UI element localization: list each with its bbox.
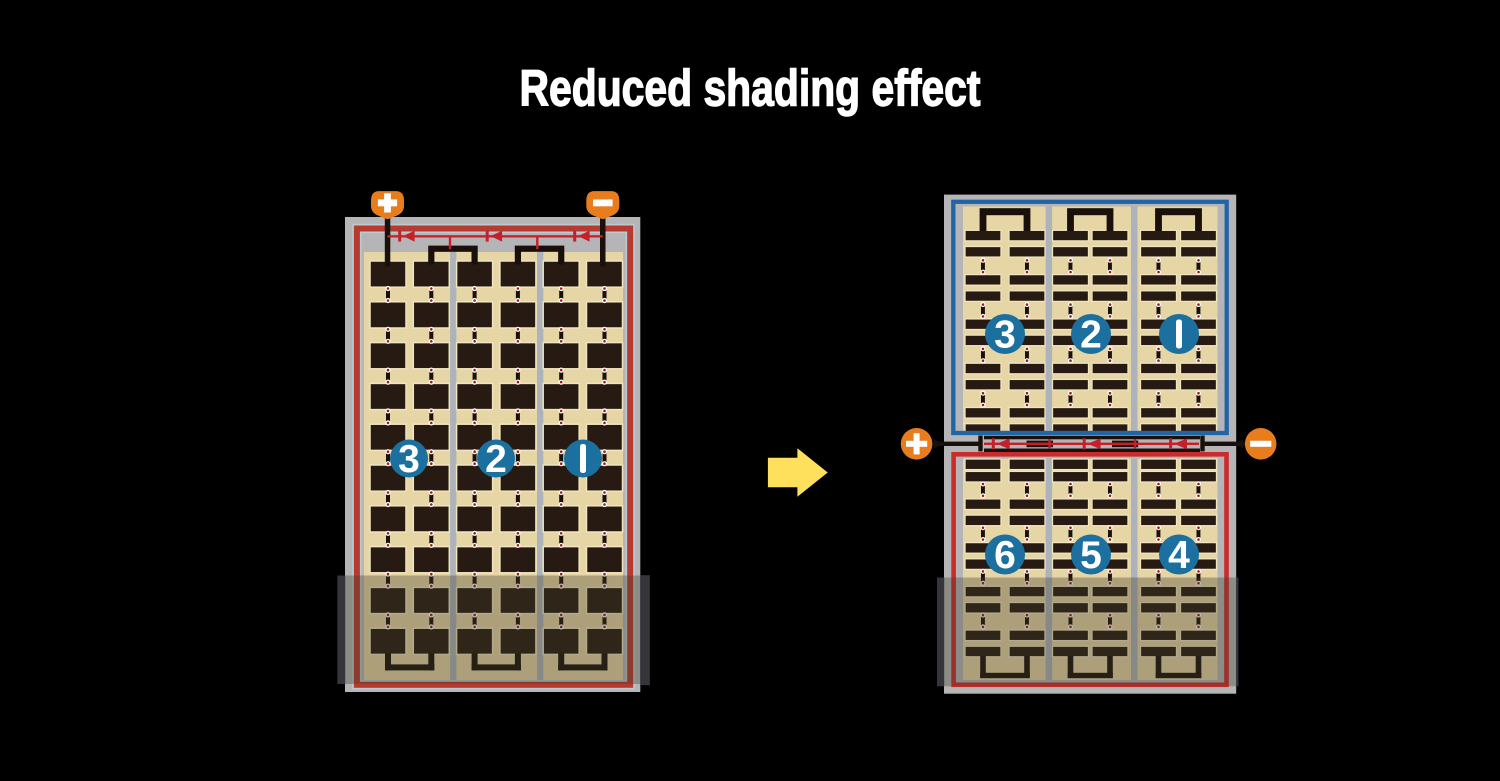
svg-text:3: 3 [398, 438, 420, 481]
svg-text:2: 2 [1080, 314, 1102, 357]
svg-text:3: 3 [994, 314, 1016, 357]
svg-text:5: 5 [1080, 534, 1102, 577]
svg-text:Reduced shading effect: Reduced shading effect [520, 60, 981, 117]
svg-text:2: 2 [485, 438, 507, 481]
svg-text:6: 6 [994, 534, 1016, 577]
svg-text:4: 4 [1168, 534, 1190, 577]
